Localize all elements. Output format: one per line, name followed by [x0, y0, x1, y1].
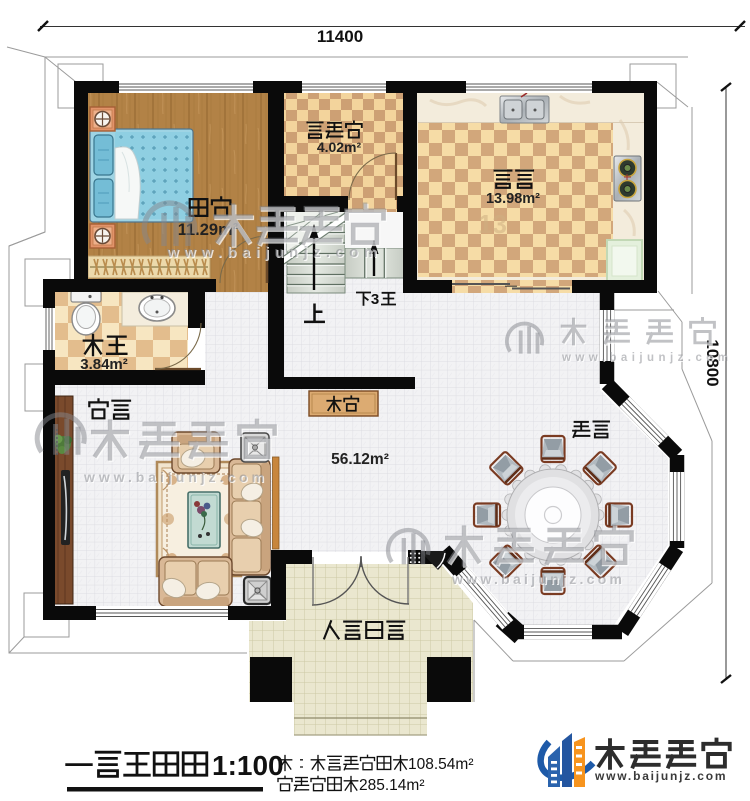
svg-text:1:100: 1:100	[212, 750, 284, 781]
svg-text:285.14m²: 285.14m²	[359, 777, 424, 794]
svg-text:11400: 11400	[317, 27, 363, 46]
svg-text:4.02m²: 4.02m²	[317, 139, 362, 155]
svg-text:www.baijunjz.com: www.baijunjz.com	[594, 769, 728, 783]
svg-text:108.54m²: 108.54m²	[408, 756, 473, 773]
svg-text:13: 13	[478, 209, 507, 239]
svg-text:13.98m²: 13.98m²	[486, 191, 540, 207]
svg-text:3: 3	[371, 291, 379, 308]
svg-text:www.baijunjz.com: www.baijunjz.com	[451, 571, 624, 587]
svg-text:56.12m²: 56.12m²	[331, 451, 389, 468]
svg-text:3.84m²: 3.84m²	[80, 356, 128, 373]
